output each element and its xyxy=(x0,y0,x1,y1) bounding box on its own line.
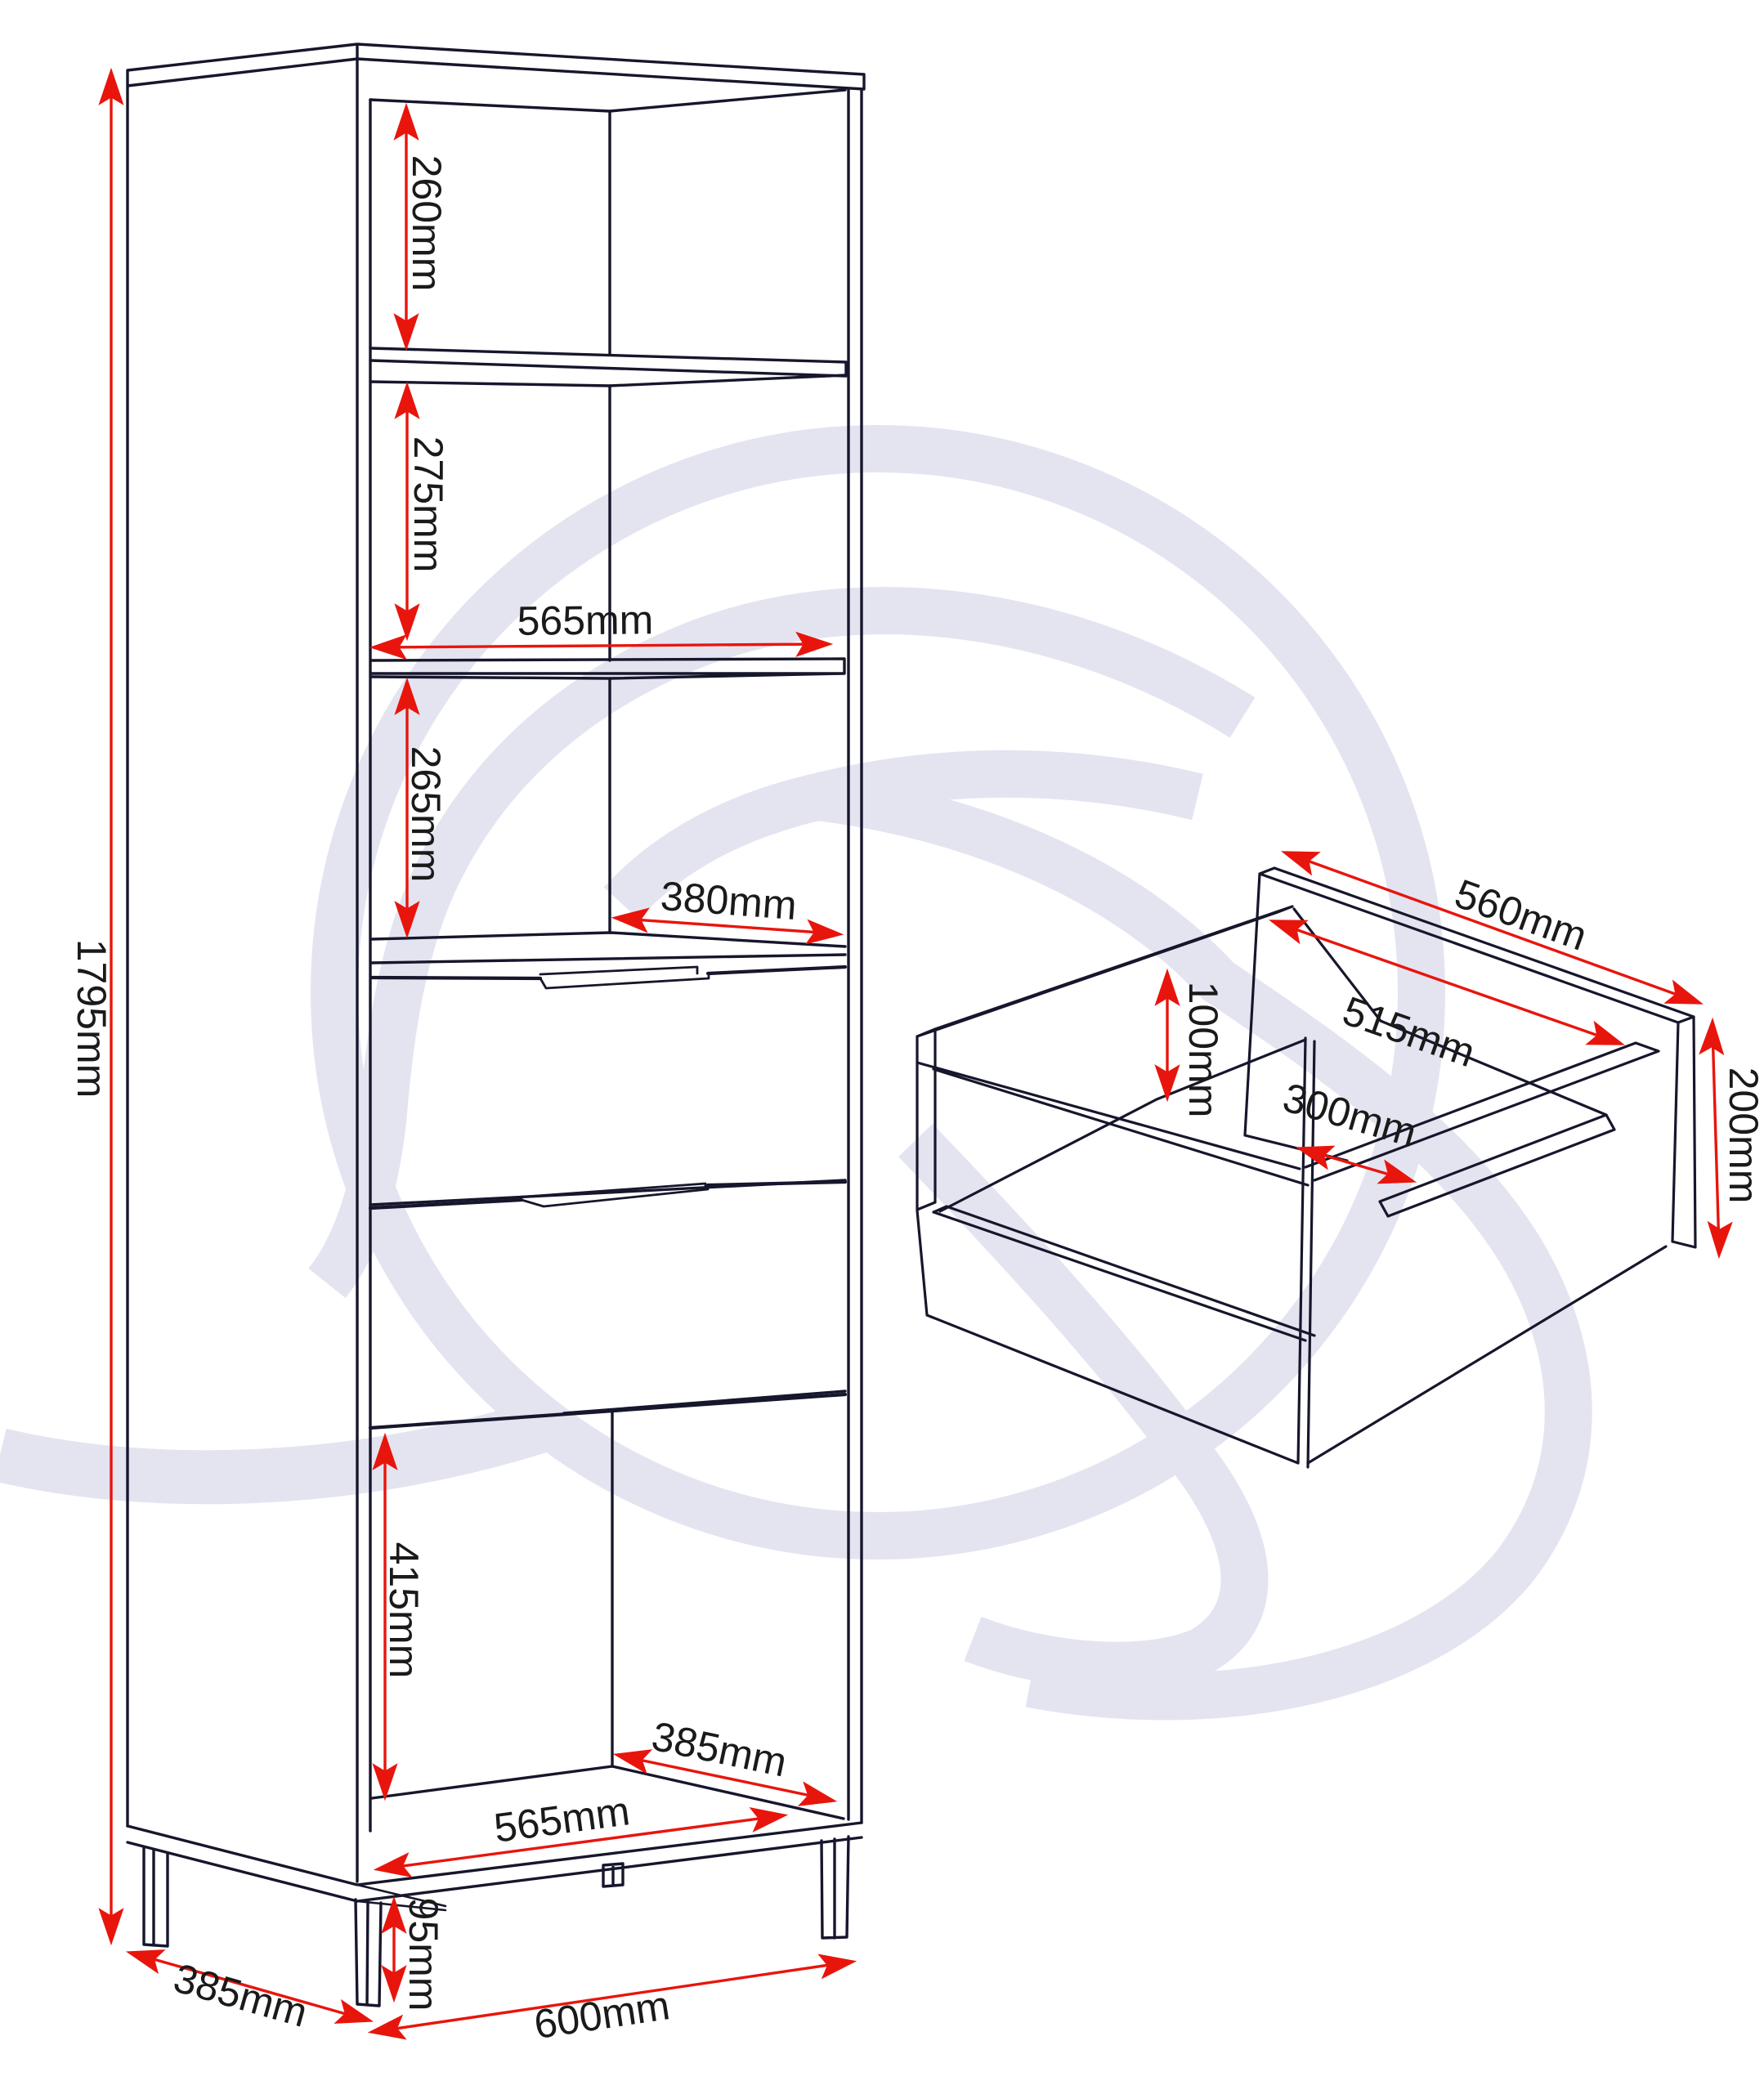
svg-text:385mm: 385mm xyxy=(169,1955,313,2036)
svg-text:415mm: 415mm xyxy=(381,1542,427,1679)
svg-text:600mm: 600mm xyxy=(531,1982,673,2047)
svg-text:560mm: 560mm xyxy=(1449,870,1593,960)
svg-text:565mm: 565mm xyxy=(517,597,653,643)
svg-text:260mm: 260mm xyxy=(404,155,450,292)
svg-text:1795mm: 1795mm xyxy=(69,939,114,1099)
svg-text:565mm: 565mm xyxy=(491,1788,633,1851)
svg-text:275mm: 275mm xyxy=(405,436,451,573)
svg-text:380mm: 380mm xyxy=(659,873,798,929)
svg-text:385mm: 385mm xyxy=(648,1713,791,1786)
svg-text:200mm: 200mm xyxy=(1721,1067,1764,1204)
svg-text:95mm: 95mm xyxy=(401,1898,446,2012)
svg-text:265mm: 265mm xyxy=(403,746,449,883)
svg-text:100mm: 100mm xyxy=(1180,982,1226,1118)
